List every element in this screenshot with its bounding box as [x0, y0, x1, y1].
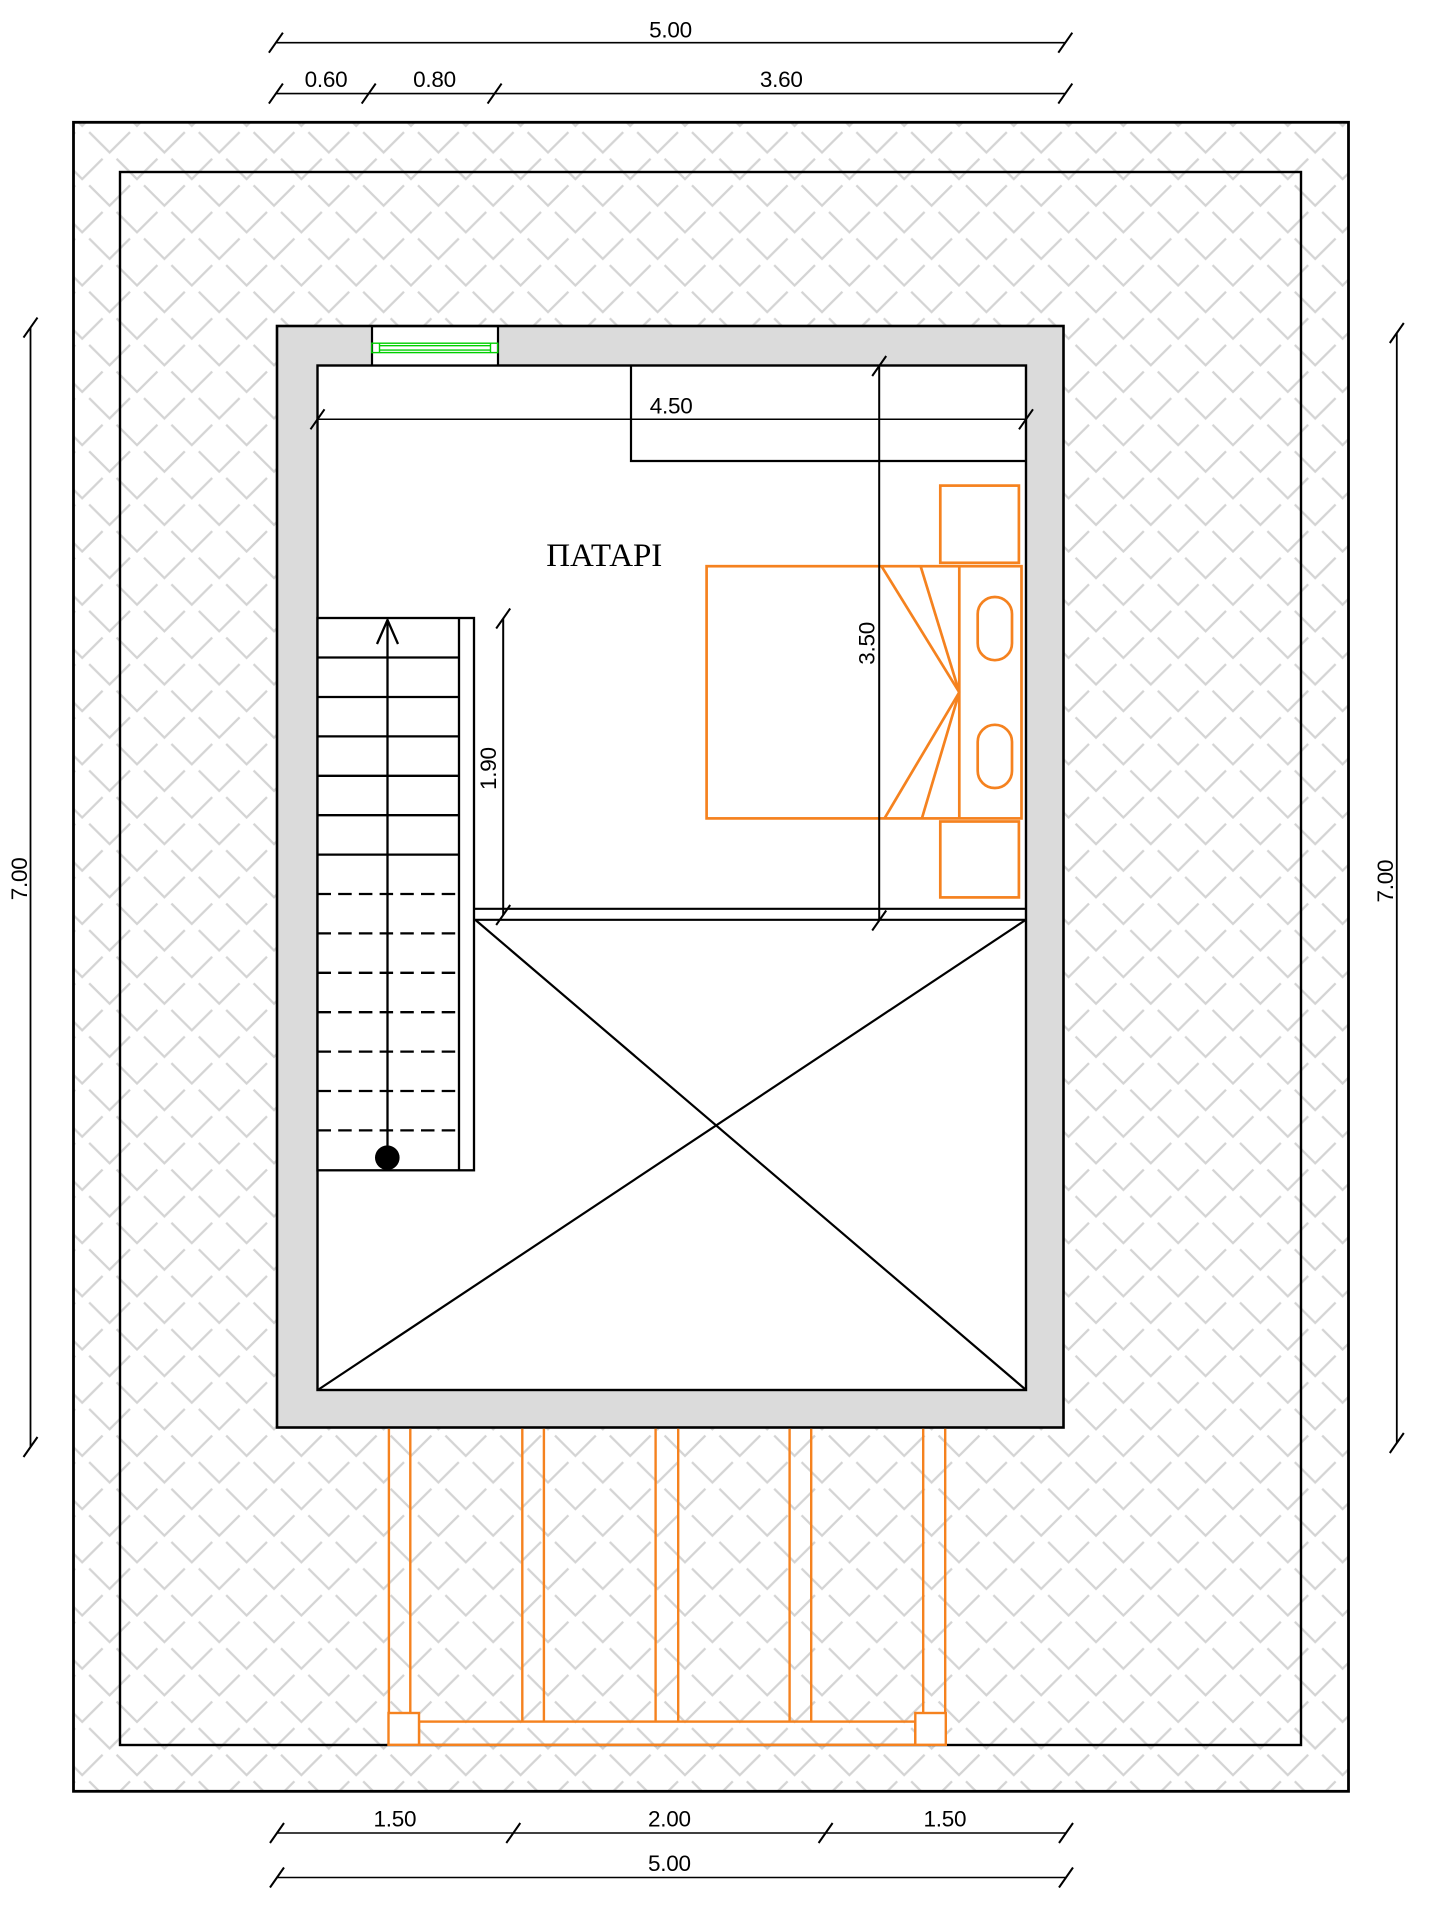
svg-text:5.00: 5.00 [648, 1851, 691, 1876]
svg-text:1.90: 1.90 [476, 747, 501, 790]
svg-text:0.60: 0.60 [305, 67, 348, 92]
svg-text:1.50: 1.50 [374, 1807, 417, 1832]
svg-text:4.50: 4.50 [650, 393, 693, 418]
svg-text:7.00: 7.00 [1373, 860, 1398, 903]
svg-text:0.80: 0.80 [413, 67, 456, 92]
svg-text:3.50: 3.50 [855, 622, 880, 665]
svg-text:ПАТАРІ: ПАТАРІ [546, 538, 662, 574]
svg-text:2.00: 2.00 [648, 1807, 691, 1832]
svg-text:7.00: 7.00 [7, 857, 32, 900]
svg-text:1.50: 1.50 [924, 1807, 967, 1832]
svg-text:5.00: 5.00 [649, 18, 692, 43]
svg-text:3.60: 3.60 [760, 67, 803, 92]
